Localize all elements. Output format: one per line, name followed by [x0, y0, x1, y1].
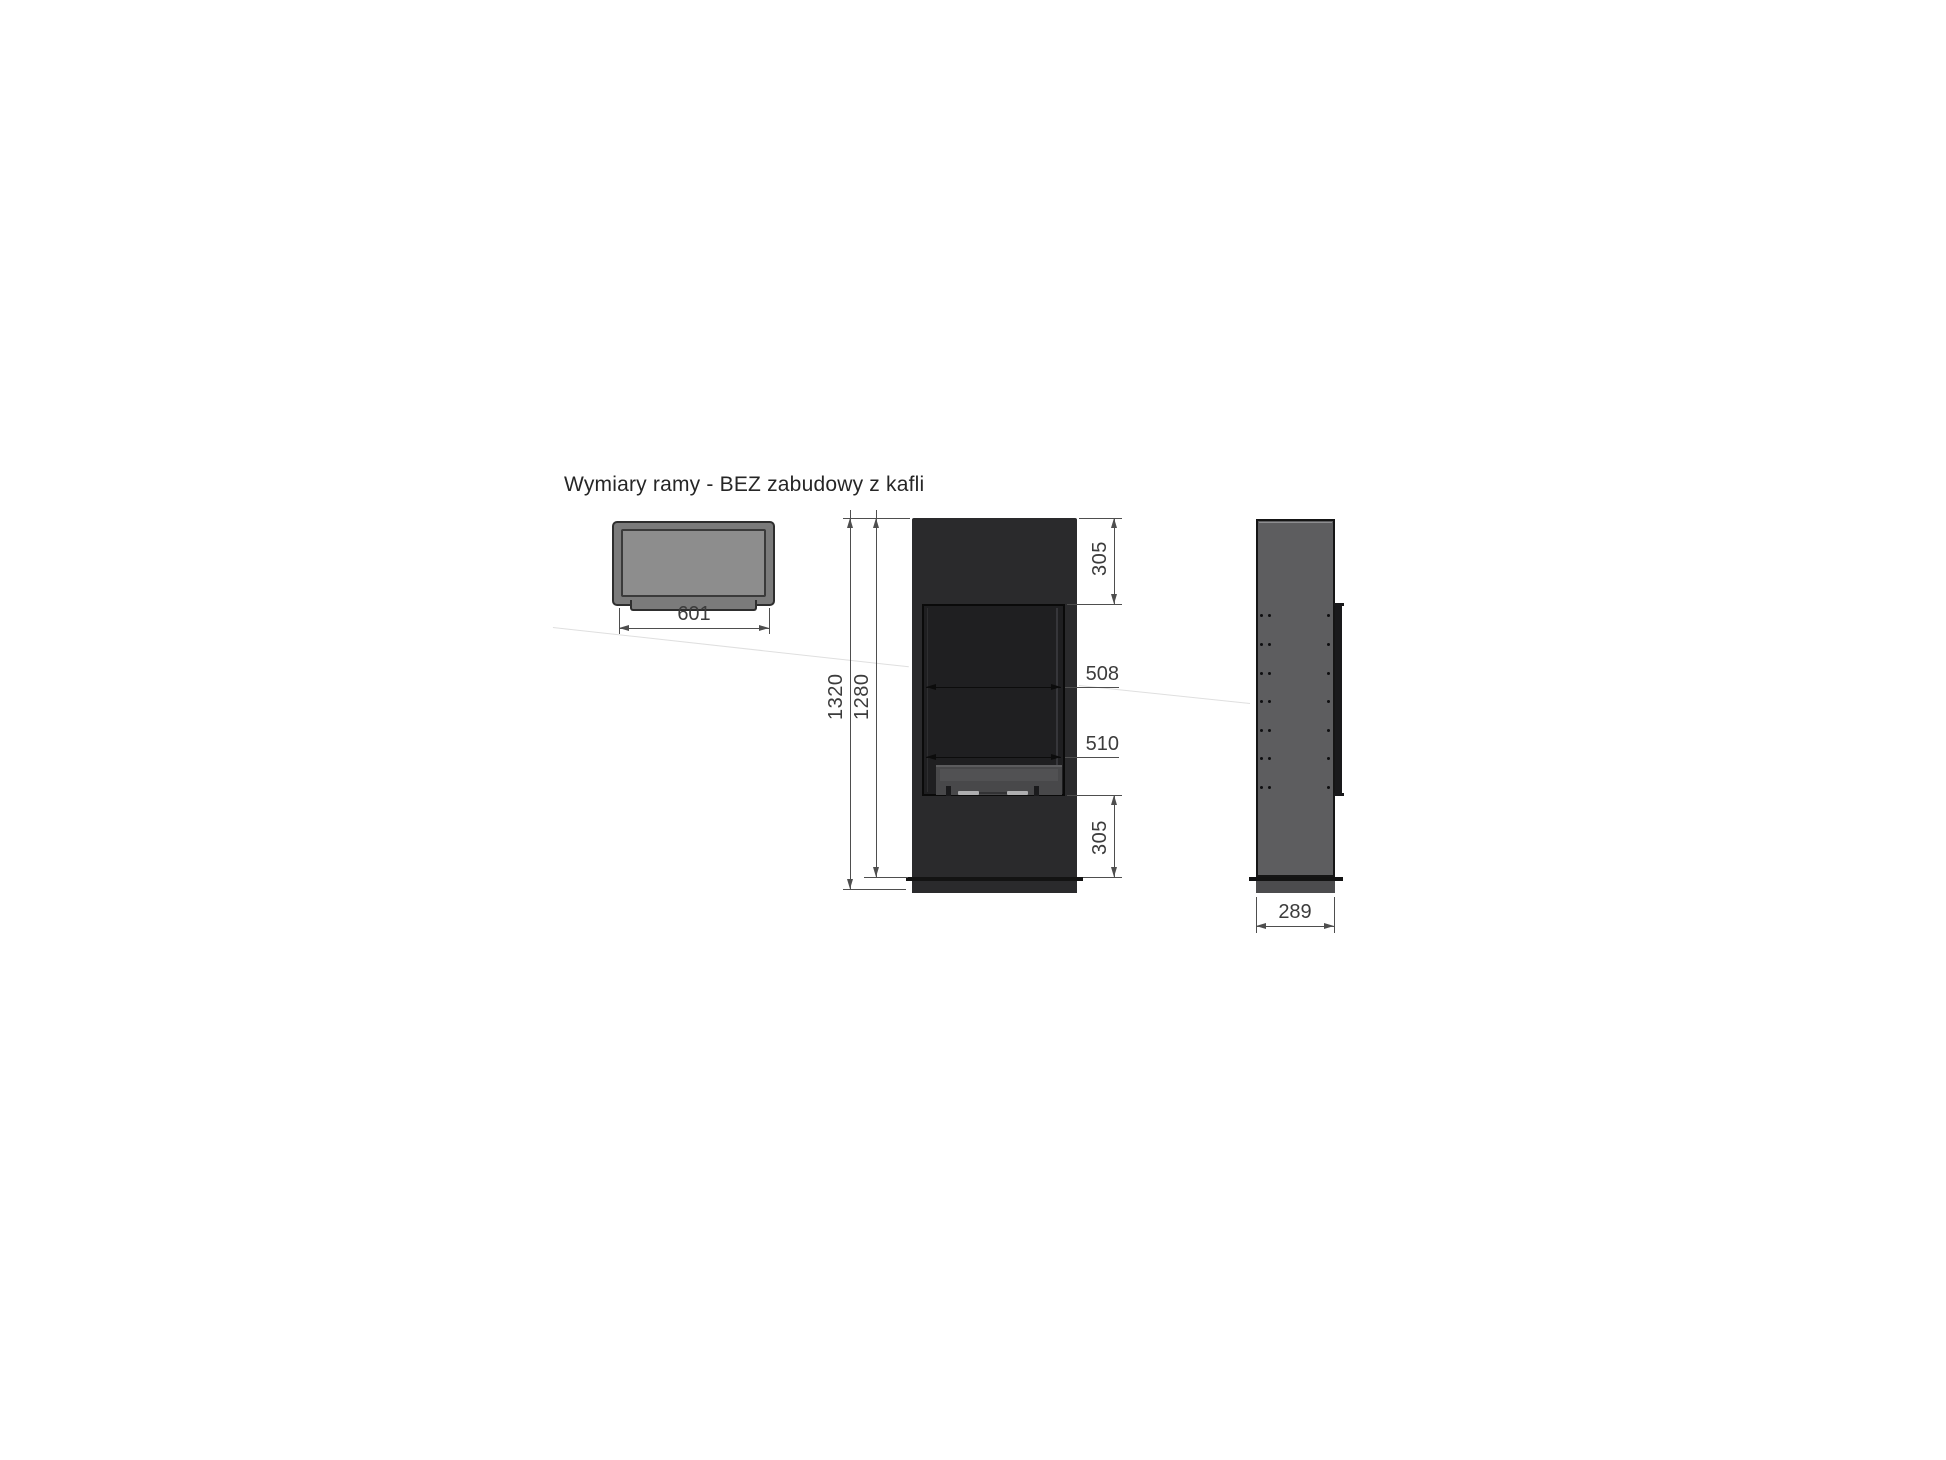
- dim-601-line: [619, 628, 769, 629]
- technical-drawing-canvas: Wymiary ramy - BEZ zabudowy z kafli 601 …: [0, 0, 1946, 1460]
- dim-305bot-label: 305: [1089, 801, 1113, 875]
- dim-289-line: [1256, 926, 1334, 927]
- rivet-dot: [1260, 757, 1263, 760]
- rivet-dot: [1260, 672, 1263, 675]
- front-view-plinth: [912, 881, 1077, 893]
- dim-510-line: [926, 757, 1061, 758]
- rivet-dot: [1327, 672, 1330, 675]
- rivet-dot: [1260, 729, 1263, 732]
- dim-305bot-ext-lower: [1083, 877, 1122, 878]
- burner-assembly: [936, 765, 1062, 795]
- dim-508-line: [926, 687, 1061, 688]
- dim-1280-line: [876, 510, 877, 877]
- side-view-glass-frame-bar: [1335, 605, 1342, 796]
- dim-601-label: 601: [619, 603, 769, 626]
- drawing-title: Wymiary ramy - BEZ zabudowy z kafli: [564, 473, 924, 497]
- burner-tab-right: [1034, 786, 1039, 796]
- firebox-inner-edge-left: [927, 608, 928, 792]
- burner-tab-left: [946, 786, 951, 796]
- dim-510-label: 510: [1049, 733, 1119, 756]
- rivet-dot: [1327, 757, 1330, 760]
- rivet-dot: [1268, 672, 1271, 675]
- rivet-dot: [1327, 614, 1330, 617]
- rivet-dot: [1268, 786, 1271, 789]
- dim-305bot-line: [1114, 795, 1115, 877]
- dim-601-ext-right: [769, 608, 770, 634]
- rivet-dot: [1268, 614, 1271, 617]
- dim-305top-ext-lower: [1067, 604, 1122, 605]
- dim-508-label: 508: [1049, 663, 1119, 686]
- side-view-glass-frame-tick-top: [1334, 603, 1344, 606]
- side-view-rivets: [1256, 519, 1335, 877]
- dim-1280-label: 1280: [851, 654, 875, 740]
- burner-slot-left: [958, 791, 979, 795]
- rivet-dot: [1268, 729, 1271, 732]
- dim-1280-arrow-top: [873, 518, 879, 528]
- dim-510-arrow-left: [926, 754, 936, 760]
- rivet-dot: [1260, 643, 1263, 646]
- burner-slot-right: [1007, 791, 1028, 795]
- rivet-dot: [1260, 614, 1263, 617]
- dim-1280-ext-bottom: [864, 877, 908, 878]
- dim-510-leader: [1065, 757, 1119, 758]
- burner-top-face: [940, 769, 1058, 781]
- dim-1320-arrow-bottom: [847, 879, 853, 889]
- dim-508-leader: [1065, 687, 1119, 688]
- dim-305top-label: 305: [1089, 522, 1113, 596]
- dim-1320-arrow-top: [847, 518, 853, 528]
- rivet-dot: [1327, 643, 1330, 646]
- rivet-dot: [1260, 700, 1263, 703]
- rivet-dot: [1327, 729, 1330, 732]
- dim-1320-ext-bottom: [843, 889, 906, 890]
- rivet-dot: [1268, 700, 1271, 703]
- side-view-plinth: [1256, 881, 1335, 893]
- rivet-dot: [1327, 700, 1330, 703]
- rivet-dot: [1327, 786, 1330, 789]
- dim-305top-line: [1114, 518, 1115, 604]
- dim-289-label: 289: [1245, 901, 1345, 924]
- dim-1280-arrow-bottom: [873, 867, 879, 877]
- rivet-dot: [1260, 786, 1263, 789]
- burner-center-rail: [979, 792, 1007, 794]
- side-view-glass-frame-tick-bottom: [1334, 793, 1344, 796]
- rivet-dot: [1268, 643, 1271, 646]
- top-view-inner-panel: [621, 529, 766, 597]
- dim-508-arrow-left: [926, 684, 936, 690]
- dim-1320-label: 1320: [825, 654, 849, 740]
- rivet-dot: [1268, 757, 1271, 760]
